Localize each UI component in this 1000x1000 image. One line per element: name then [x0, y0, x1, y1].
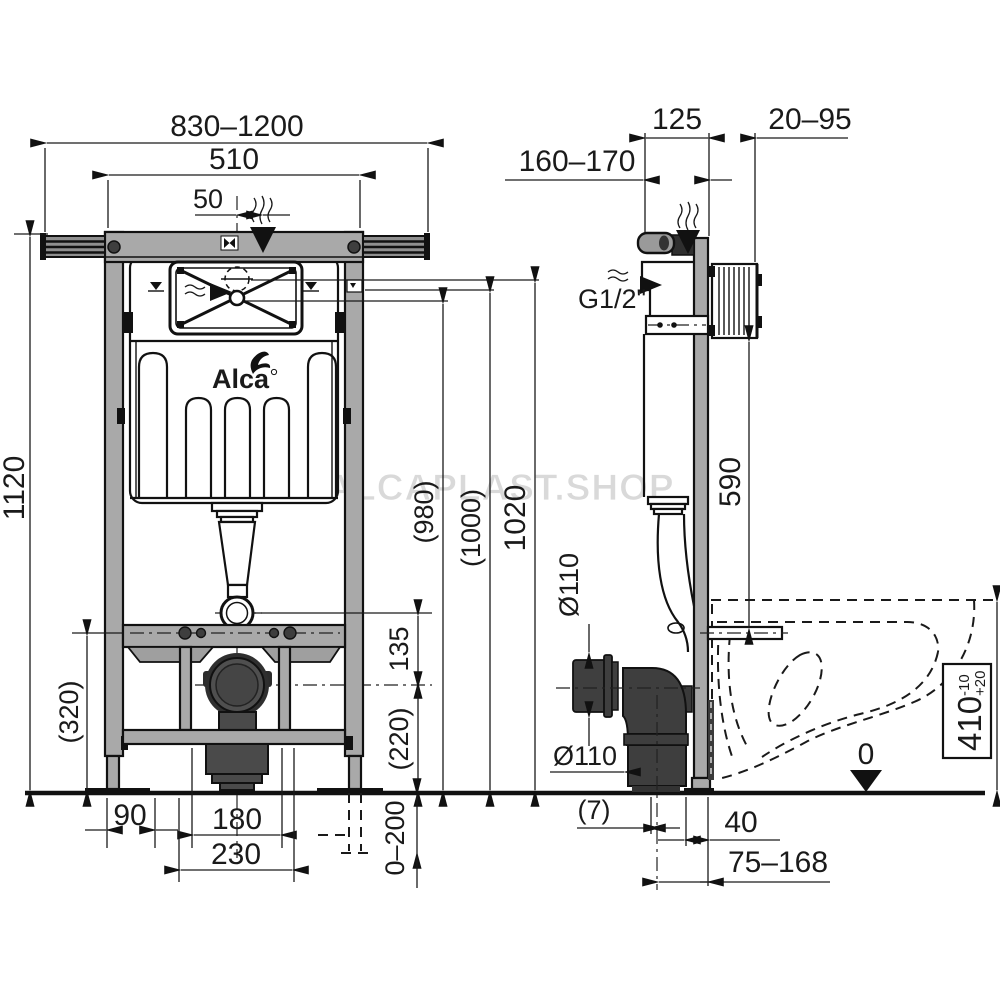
dim-frame-width: 510: [209, 143, 259, 176]
dim-outlet-distance: 75–168: [728, 846, 828, 879]
steam-icon: [252, 196, 272, 224]
dim-foot-inset: 90: [113, 799, 146, 832]
leg-extension-dashed: [318, 793, 369, 853]
crossbar-bolt: [179, 627, 191, 639]
dim-bowl-height: 410: [951, 696, 988, 751]
lower-bar: [123, 730, 345, 744]
steam-icon: [678, 202, 698, 230]
wall-rail-right: [363, 233, 430, 260]
technical-drawing-page: ALCAPLAST.SHOP Alca: [0, 0, 1000, 1000]
base-plate-right: [317, 788, 383, 793]
pipe-coupler: [573, 655, 618, 717]
waste-elbow-front: [203, 653, 272, 734]
foot-right: [349, 756, 361, 789]
crossbar-bolt: [284, 627, 296, 639]
dim-bowl-tol-plus: +20: [972, 671, 989, 696]
level-zero-marker: 0: [850, 738, 882, 792]
dim-profile-size: 40: [724, 806, 757, 839]
dim-ref-1000: (1000): [456, 489, 486, 567]
foot-left: [107, 756, 119, 789]
dim-waste-outlet-dia: Ø110: [553, 741, 617, 771]
base-plate-side: [684, 788, 714, 793]
valve-icon: [221, 236, 238, 250]
dim-waste-pipe-dia: Ø110: [554, 553, 584, 617]
dim-leg-adjust: 0–200: [380, 800, 410, 875]
inspection-window: [170, 262, 302, 334]
flush-pipe: [212, 503, 262, 629]
base-plate-left: [85, 788, 150, 793]
installation-frame-drawing: ALCAPLAST.SHOP Alca: [0, 0, 1000, 1000]
side-view: G1/2": [556, 202, 996, 890]
crossbar: [123, 625, 345, 647]
dim-outlet-center-height: (220): [384, 707, 414, 770]
dim-axis-offset: (7): [578, 795, 611, 825]
dim-base-height: (320): [54, 680, 84, 743]
dim-install-depth: 160–170: [519, 145, 636, 178]
crossbar-bolt: [270, 629, 279, 638]
dim-cistern-bottom-height: 590: [714, 457, 747, 507]
dim-bowl-tol-minus: -10: [956, 674, 973, 696]
crossbar-bolt: [197, 629, 206, 638]
foot-side: [692, 778, 710, 789]
dim-frame-depth: 125: [652, 103, 702, 136]
drain-socket: [206, 744, 268, 790]
dim-flush-offset: 50: [193, 184, 223, 214]
waste-elbow-side: [623, 668, 688, 792]
dim-outlet-frame-width: 230: [211, 838, 261, 871]
dim-ref-1020: 1020: [499, 485, 532, 552]
rail-bolt: [108, 241, 120, 253]
wall-rail-left: [40, 233, 105, 260]
dim-frame-height: 1120: [0, 456, 31, 521]
dim-outlet-drop: 135: [384, 626, 414, 671]
level-zero-label: 0: [858, 738, 875, 771]
dim-overall-width: 830–1200: [170, 110, 303, 143]
front-view: Alca: [40, 196, 432, 858]
dim-ref-980: (980): [409, 480, 439, 543]
frame-column-left: [105, 232, 123, 756]
rail-bolt: [348, 241, 360, 253]
alca-logo-text: Alca: [212, 364, 270, 394]
frame-column-right: [345, 232, 363, 756]
dim-water-connection: G1/2": [578, 284, 646, 314]
dim-wall-distance: 20–95: [768, 103, 851, 136]
wall-bracket: [707, 264, 762, 338]
dim-outlet-width: 180: [212, 803, 262, 836]
